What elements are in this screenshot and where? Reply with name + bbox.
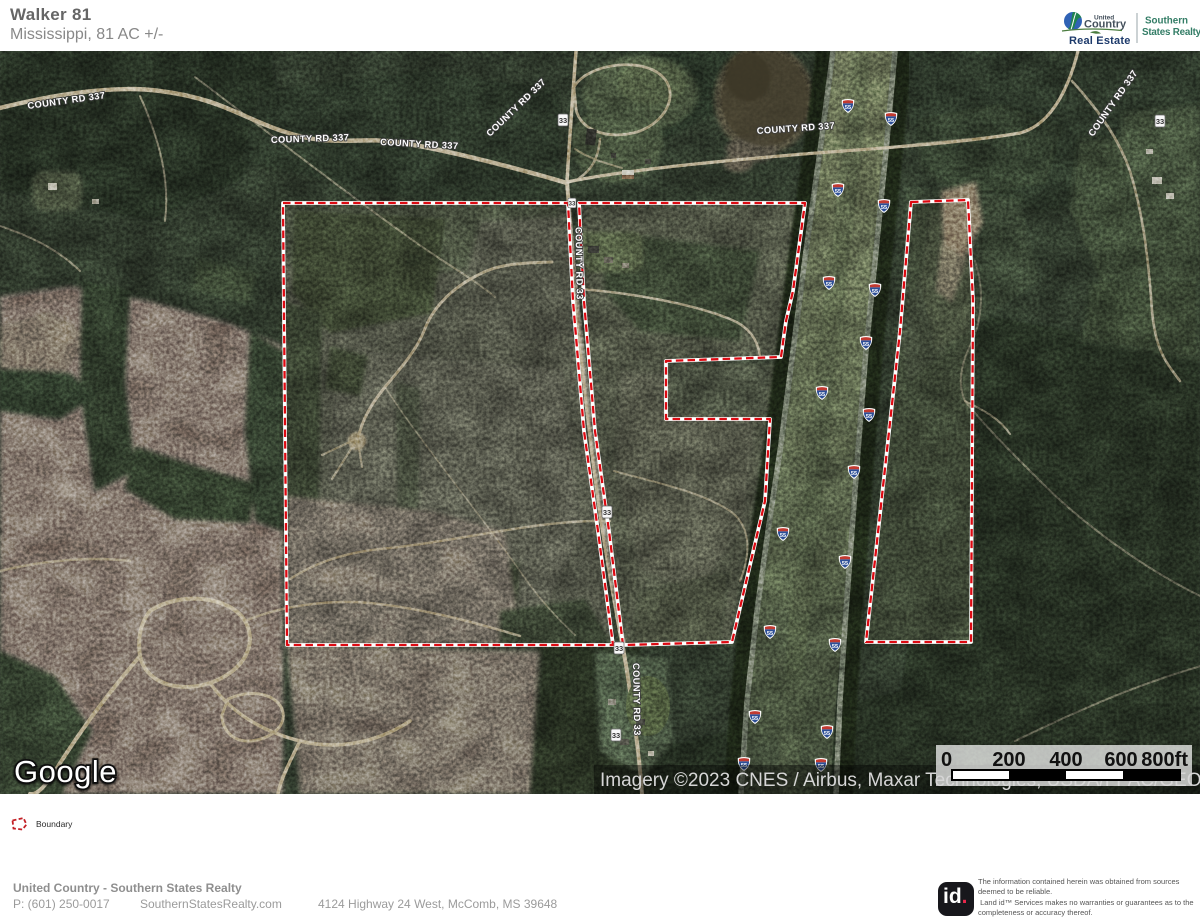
svg-text:800ft: 800ft [1141,749,1188,771]
svg-text:0: 0 [941,749,952,771]
svg-text:Southern: Southern [1145,16,1188,27]
svg-text:400: 400 [1049,749,1082,771]
svg-text:600: 600 [1104,749,1137,771]
svg-text:200: 200 [992,749,1025,771]
svg-text:States Realty: States Realty [1142,27,1200,38]
svg-text:Google: Google [14,754,117,789]
svg-text:Real Estate: Real Estate [1069,35,1131,47]
svg-text:COUNTY RD 33: COUNTY RD 33 [631,663,642,736]
svg-text:COUNTY RD 33: COUNTY RD 33 [574,227,585,300]
